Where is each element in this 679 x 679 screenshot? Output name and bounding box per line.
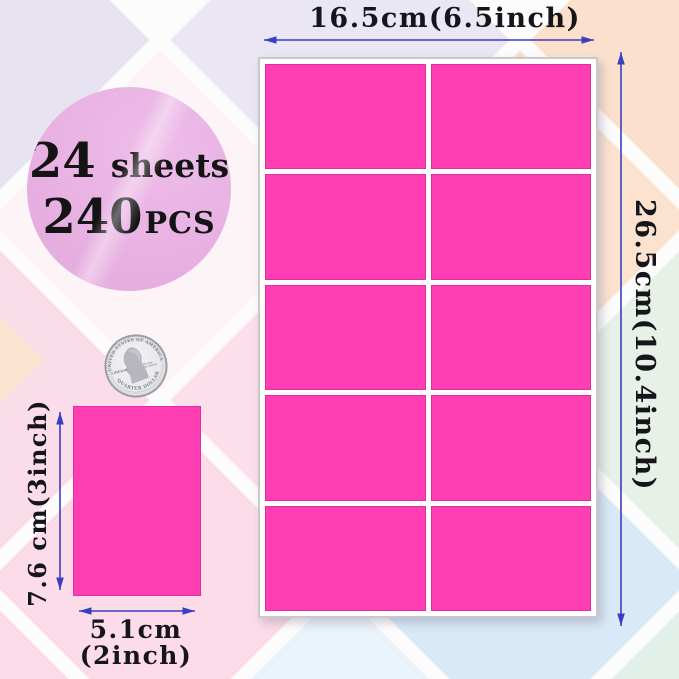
label-sticker	[265, 174, 426, 279]
label-width-label-inch: (2inch)	[61, 643, 211, 669]
quarter-coin-icon: UNITED STATES OF AMERICA QUARTER DOLLAR …	[98, 328, 174, 404]
sheet-count-unit: sheets	[111, 146, 229, 185]
product-image: 16.5cm(6.5inch) 26.5cm(10.4inch) 7.6 cm(…	[0, 0, 679, 679]
label-sheet	[258, 57, 598, 618]
pcs-count: 240 PCS	[42, 191, 215, 243]
pcs-count-unit: PCS	[145, 206, 216, 241]
pcs-count-number: 240	[42, 191, 142, 243]
label-sticker	[431, 174, 592, 279]
count-badge: 24 sheets 240 PCS	[27, 87, 231, 291]
label-sticker	[265, 64, 426, 169]
sheet-count-number: 24	[29, 135, 96, 187]
sheet-height-label: 26.5cm(10.4inch)	[628, 175, 660, 515]
label-grid	[265, 64, 591, 611]
label-sticker	[265, 395, 426, 500]
label-sticker	[265, 285, 426, 390]
label-sticker	[431, 395, 592, 500]
sheet-width-label: 16.5cm(6.5inch)	[295, 4, 595, 34]
label-width-label-cm: 5.1cm	[61, 617, 211, 643]
single-label-sticker	[73, 406, 201, 596]
sheet-count: 24 sheets	[29, 135, 229, 187]
label-sticker	[431, 64, 592, 169]
label-height-label: 7.6 cm(3inch)	[24, 388, 52, 618]
label-sticker	[265, 506, 426, 611]
label-sticker	[431, 506, 592, 611]
label-sticker	[431, 285, 592, 390]
